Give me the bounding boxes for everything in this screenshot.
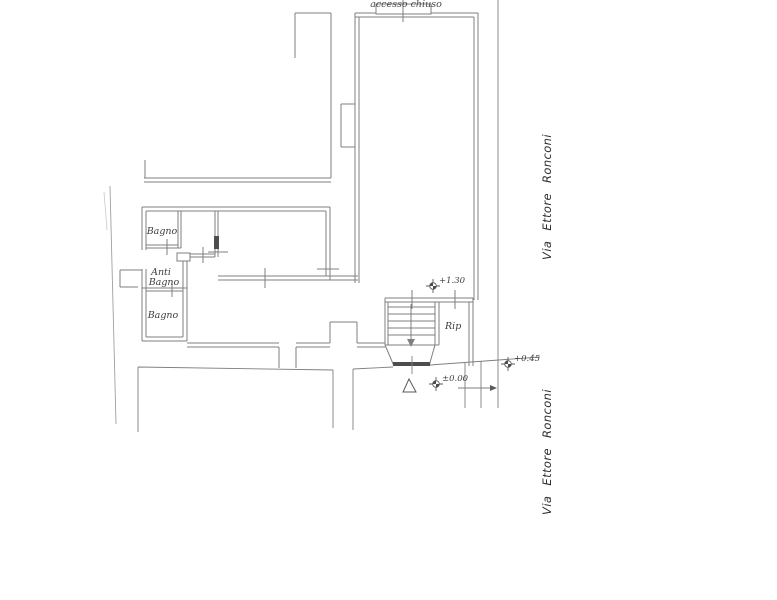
stair-direction-arrow-head (407, 339, 415, 347)
rip-room (469, 298, 473, 366)
floor-plan-page: accesso chiuso Bagno Anti Bagno Bagno Ri (0, 0, 777, 600)
lower-left-block-walls (138, 367, 333, 432)
bagno-lower-label: Bagno (147, 310, 179, 321)
street-name-lower: Via Ettore Ronconi (540, 389, 554, 515)
stair-threshold (393, 362, 430, 366)
partition-wall-poche (214, 236, 219, 249)
floor-plan-drawing: accesso chiuso Bagno Anti Bagno Bagno Ri (0, 0, 777, 600)
elevation-value-sidewalk: +0.45 (514, 354, 540, 364)
main-hall-inner-walls (355, 17, 474, 300)
anti-bagno-label-line2: Bagno (148, 277, 180, 288)
rip-room-walls (469, 298, 473, 366)
stair-door-ticks (412, 290, 455, 309)
boundary-wall-horizontal (144, 160, 331, 182)
property-line (110, 186, 116, 424)
lower-left-block (138, 367, 333, 432)
corridor-south-wall (187, 322, 385, 368)
steps-dimension-arrow (490, 385, 497, 391)
access-note-label: accesso chiuso (370, 0, 442, 10)
bagno-upper-label: Bagno (146, 226, 178, 237)
street-name-upper: Via Ettore Ronconi (540, 134, 554, 260)
neighbor-corner-wall (295, 13, 331, 178)
main-hall-pilaster (341, 104, 355, 147)
entrance-triangle-symbol (403, 379, 416, 392)
apartment-door-ticks (167, 239, 339, 297)
main-hall-outer-walls (355, 13, 478, 300)
corridor-wall-lines (187, 322, 385, 368)
street-front (353, 0, 540, 430)
street-front-lines (353, 356, 540, 430)
elevation-marker-stair-landing: +1.30 (426, 276, 466, 293)
interior-door-leaf (177, 253, 190, 261)
neighbor-building-walls (144, 13, 331, 182)
property-boundary (104, 186, 116, 424)
entrance-steps (465, 361, 481, 408)
partition-wall (190, 211, 218, 257)
elevation-value-entrance: ±0.00 (442, 374, 469, 384)
entrance-jamb (120, 270, 142, 287)
elevation-value-stair-landing: +1.30 (439, 276, 466, 286)
soggiorno-south-wall (218, 276, 358, 280)
property-line-faint (104, 192, 107, 230)
rip-room-label: Rip (444, 321, 461, 332)
elevation-marker-entrance: ±0.00 (429, 374, 469, 391)
main-hall (341, 0, 478, 300)
elevation-marker-sidewalk: +0.45 (501, 354, 540, 371)
